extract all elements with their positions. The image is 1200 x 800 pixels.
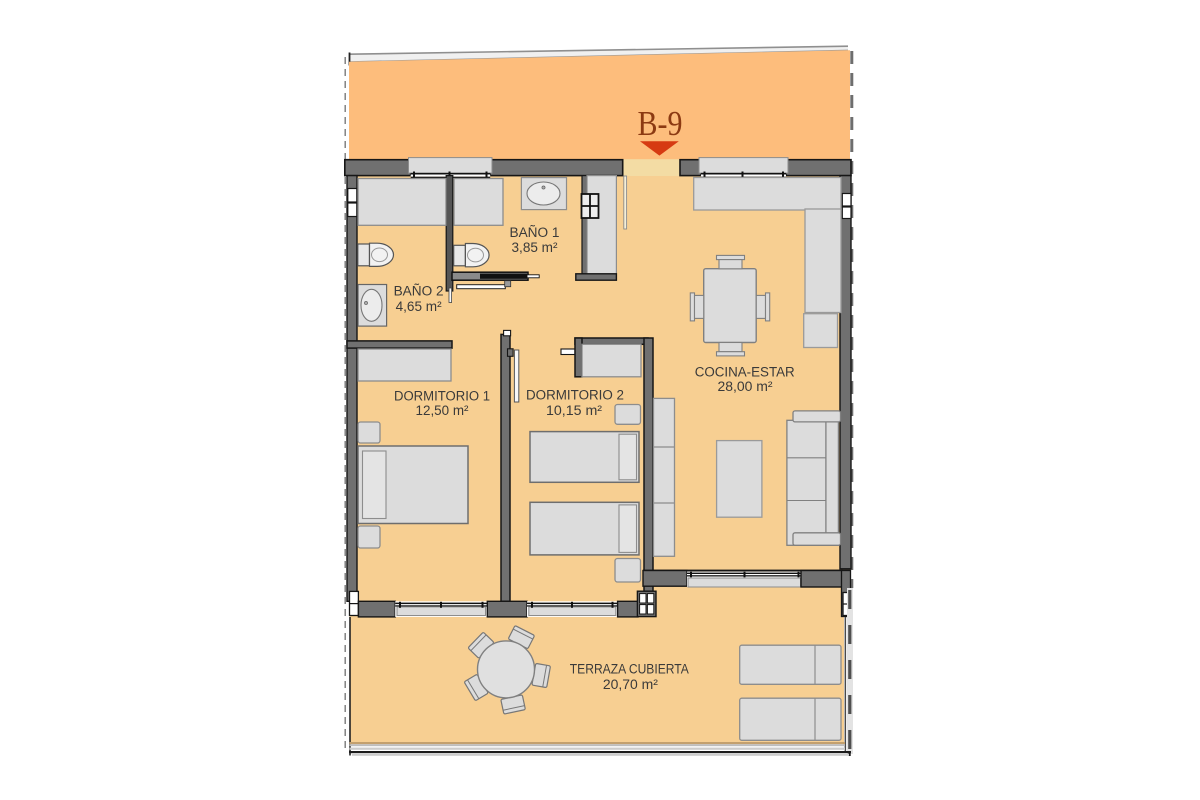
svg-text:28,00 m²: 28,00 m² <box>718 379 774 394</box>
svg-text:12,50 m²: 12,50 m² <box>416 403 470 418</box>
svg-text:3,85 m²: 3,85 m² <box>512 240 559 255</box>
svg-text:BAÑO 2: BAÑO 2 <box>394 284 444 299</box>
svg-text:10,15 m²: 10,15 m² <box>546 403 603 418</box>
svg-text:B-9: B-9 <box>638 104 683 143</box>
svg-text:COCINA-ESTAR: COCINA-ESTAR <box>695 365 795 380</box>
svg-text:BAÑO 1: BAÑO 1 <box>510 225 560 240</box>
svg-text:20,70 m²: 20,70 m² <box>603 677 659 692</box>
svg-text:4,65 m²: 4,65 m² <box>396 299 443 314</box>
svg-text:DORMITORIO 2: DORMITORIO 2 <box>526 388 624 403</box>
svg-text:DORMITORIO 1: DORMITORIO 1 <box>394 389 490 404</box>
svg-text:TERRAZA CUBIERTA: TERRAZA CUBIERTA <box>570 662 689 677</box>
